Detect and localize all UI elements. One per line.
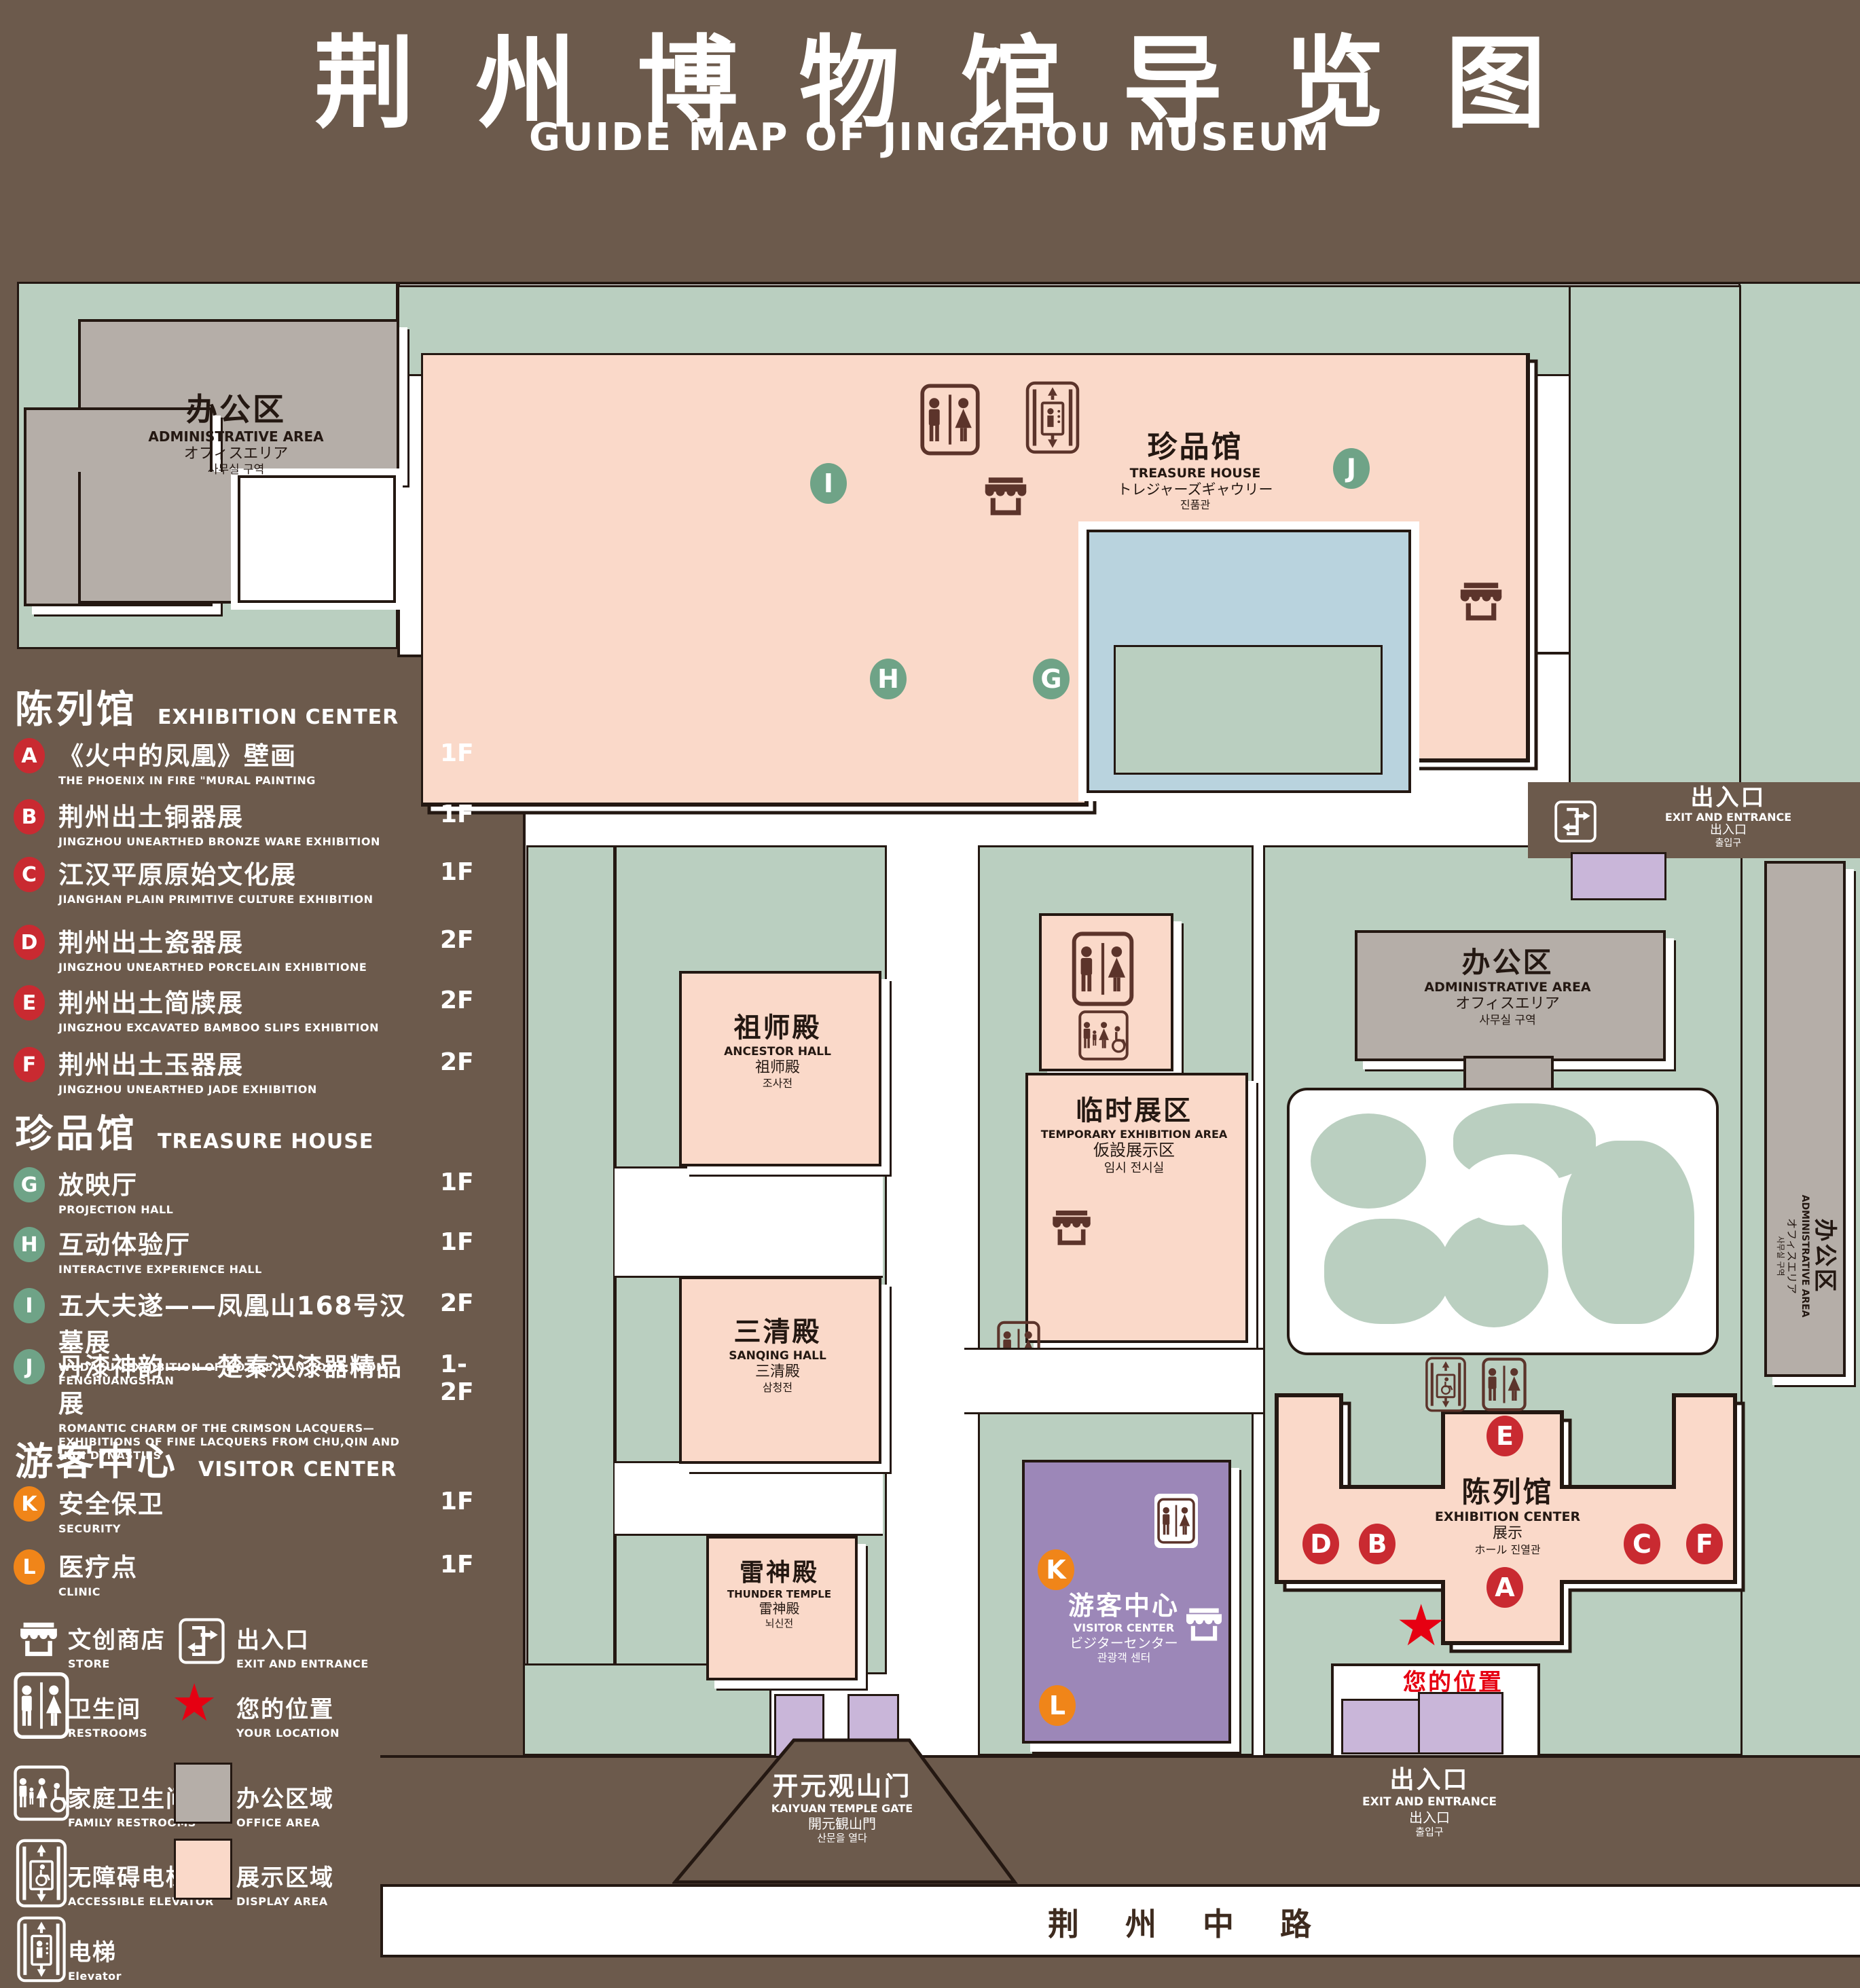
thunder-temple-label: 雷神殿 THUNDER TEMPLE 雷神殿 뇌신전 <box>706 1558 852 1630</box>
treasure-label-ja: トレジャーズギャウリー <box>1019 481 1372 499</box>
legend-symbol-exit-zh: 出入口 <box>236 1621 369 1655</box>
legend-item-j-floor: 1-2F <box>440 1350 489 1406</box>
garden-pond <box>1460 1154 1562 1226</box>
admin-e-label-en: ADMINISTRATIVE AREA <box>1355 980 1660 995</box>
thunder-label-en: THUNDER TEMPLE <box>706 1588 852 1600</box>
accessible-elevator-icon <box>14 1839 69 1908</box>
legend-symbol-location-zh: 您的位置 <box>236 1691 340 1724</box>
legend-symbol-restrooms: 卫生间 RESTROOMS <box>68 1691 147 1739</box>
legend-symbol-store: 文创商店 STORE <box>68 1621 166 1670</box>
marker-f: F <box>1686 1524 1723 1564</box>
visitor-label-ko: 관광객 센터 <box>1022 1651 1226 1665</box>
admin-nw-label-ja: オフィスエリア <box>78 445 394 464</box>
sanqing-label-zh: 三清殿 <box>679 1316 876 1349</box>
legend-symbol-location-en: YOUR LOCATION <box>236 1727 340 1739</box>
legend-item-k-floor: 1F <box>440 1488 474 1515</box>
legend-item-g: G 放映厅 PROJECTION HALL 1F <box>14 1164 489 1217</box>
admin-nw-courtyard <box>238 475 396 603</box>
restroom-icon <box>1482 1357 1527 1412</box>
admin-strip-label-zh: 办公区 <box>1810 1147 1838 1365</box>
family-restroom-icon <box>14 1760 69 1826</box>
legend-symbol-exit-en: EXIT AND ENTRANCE <box>236 1657 369 1670</box>
sanqing-hall-label: 三清殿 SANQING HALL 三清殿 삼청전 <box>679 1316 876 1395</box>
exit-s-ja: 出入口 <box>1304 1809 1555 1826</box>
marker-d: D <box>1302 1524 1339 1564</box>
legend-item-c: C 江汉平原原始文化展 JIANGHAN PLAIN PRIMITIVE CUL… <box>14 854 489 906</box>
legend-item-k: K 安全保卫 SECURITY 1F <box>14 1484 489 1536</box>
ancestor-label-en: ANCESTOR HALL <box>679 1045 876 1059</box>
legend-header-treasure-zh: 珍品馆 <box>15 1103 137 1158</box>
legend-symbol-elevator: 电梯 Elevator <box>68 1934 122 1983</box>
legend-marker-j: J <box>14 1349 45 1384</box>
restroom-icon <box>920 384 980 456</box>
store-icon <box>981 475 1030 523</box>
marker-g: G <box>1033 659 1070 699</box>
sanqing-label-en: SANQING HALL <box>679 1349 876 1363</box>
legend-item-g-floor: 1F <box>440 1168 474 1196</box>
legend-header-exhibition-en: EXHIBITION CENTER <box>158 705 399 734</box>
restroom-icon <box>1157 1498 1195 1544</box>
exit-icon <box>1554 800 1597 843</box>
family-restroom-icon <box>1078 1010 1129 1061</box>
gate-block <box>1571 852 1666 900</box>
temporary-label-zh: 临时展区 <box>1025 1094 1243 1128</box>
legend-item-f-zh: 荆州出土玉器展 <box>58 1044 425 1081</box>
legend-header-exhibition-zh: 陈列馆 <box>15 679 137 734</box>
exit-south-label: 出入口 EXIT AND ENTRANCE 出入口 출입구 <box>1304 1765 1555 1838</box>
elevator-icon <box>1025 380 1080 455</box>
path-band <box>615 1166 883 1278</box>
temporary-label-ja: 仮設展示区 <box>1025 1141 1243 1160</box>
exit-ne-ja: 出入口 <box>1603 824 1854 838</box>
legend-symbol-office: 办公区域 OFFICE AREA <box>236 1780 334 1829</box>
office-area-swatch <box>174 1763 232 1824</box>
legend-item-g-en: PROJECTION HALL <box>58 1203 425 1217</box>
exit-s-zh: 出入口 <box>1304 1765 1555 1795</box>
gate-label-ja: 開元観山門 <box>706 1816 978 1832</box>
legend-marker-f: F <box>14 1047 45 1082</box>
ancestor-label-zh: 祖师殿 <box>679 1012 876 1045</box>
gate-label-en: KAIYUAN TEMPLE GATE <box>706 1802 978 1816</box>
marker-k: K <box>1038 1549 1074 1590</box>
marker-a: A <box>1487 1567 1523 1608</box>
exit-icon <box>178 1617 225 1665</box>
thunder-label-zh2: 雷神殿 <box>706 1600 852 1617</box>
admin-strip-label-ko: 사무실 구역 <box>1775 1147 1785 1365</box>
treasure-label-en: TREASURE HOUSE <box>1019 466 1372 481</box>
gate-label-zh: 开元观山门 <box>706 1771 978 1802</box>
lawn-west-strip <box>526 845 615 1674</box>
legend-item-e-floor: 2F <box>440 987 474 1014</box>
temporary-exhibition-label: 临时展区 TEMPORARY EXHIBITION AREA 仮設展示区 임시 … <box>1025 1094 1243 1176</box>
admin-strip-label: 办公区 ADMINISTRATIVE AREA オフィスエリア 사무실 구역 <box>1764 1147 1838 1365</box>
exit-ne-zh: 出入口 <box>1603 785 1854 811</box>
legend-item-e-en: JINGZHOU EXCAVATED BAMBOO SLIPS EXHIBITI… <box>58 1021 425 1035</box>
admin-nw-label-zh: 办公区 <box>78 390 394 428</box>
admin-e-label-ja: オフィスエリア <box>1355 995 1660 1014</box>
admin-e-label-zh: 办公区 <box>1355 945 1660 980</box>
restroom-icon <box>14 1672 69 1739</box>
legend-marker-i: I <box>14 1288 45 1323</box>
thunder-label-zh: 雷神殿 <box>706 1558 852 1588</box>
exhibition-label-l4: ホール 진열관 <box>1385 1543 1630 1557</box>
sanqing-label-zh2: 三清殿 <box>679 1363 876 1382</box>
legend-marker-l: L <box>14 1549 45 1585</box>
kaiyuan-gate-label: 开元观山门 KAIYUAN TEMPLE GATE 開元観山門 산문을 열다 <box>706 1771 978 1845</box>
restroom-icon <box>1072 932 1134 1006</box>
legend-item-b: B 荆州出土铜器展 JINGZHOU UNEARTHED BRONZE WARE… <box>14 796 489 849</box>
store-icon <box>1457 581 1506 628</box>
store-icon <box>1183 1606 1225 1647</box>
garden-lawn <box>1440 1215 1548 1327</box>
legend-symbol-display-zh: 展示区域 <box>236 1859 334 1892</box>
sanqing-label-ko: 삼청전 <box>679 1381 876 1395</box>
marker-b: B <box>1359 1524 1396 1564</box>
road-name: 荆 州 中 路 <box>951 1900 1426 1945</box>
legend-marker-c: C <box>14 857 45 892</box>
admin-nw-label: 办公区 ADMINISTRATIVE AREA オフィスエリア 사무실 구역 <box>78 390 394 477</box>
legend-marker-a: A <box>14 738 45 773</box>
temporary-label-ko: 임시 전시실 <box>1025 1161 1243 1176</box>
your-location-star-icon: ★ <box>1396 1597 1446 1654</box>
exit-ne-ko: 출입구 <box>1603 838 1854 849</box>
legend-item-j-zh: 丹漆神韵——楚秦汉漆器精品展 <box>58 1346 425 1420</box>
pond-lawn <box>1114 645 1383 775</box>
thunder-label-ko: 뇌신전 <box>706 1617 852 1630</box>
store-icon <box>1049 1209 1094 1252</box>
marker-i: I <box>810 463 847 504</box>
legend-item-b-floor: 1F <box>440 800 474 828</box>
legend-symbol-restrooms-zh: 卫生间 <box>68 1691 147 1724</box>
legend-item-d-floor: 2F <box>440 926 474 954</box>
legend-header-visitor-zh: 游客中心 <box>15 1431 178 1486</box>
garden-lawn <box>1562 1141 1694 1324</box>
admin-e-label-ko: 사무실 구역 <box>1355 1014 1660 1028</box>
exit-s-en: EXIT AND ENTRANCE <box>1304 1795 1555 1809</box>
legend-item-c-zh: 江汉平原原始文化展 <box>58 854 425 891</box>
legend-item-h-en: INTERACTIVE EXPERIENCE HALL <box>58 1263 425 1276</box>
legend-item-d: D 荆州出土瓷器展 JINGZHOU UNEARTHED PORCELAIN E… <box>14 922 489 974</box>
garden-lawn <box>1324 1219 1450 1324</box>
legend-item-h-floor: 1F <box>440 1228 474 1256</box>
admin-nw-joint <box>78 472 247 604</box>
legend-item-a-floor: 1F <box>440 739 474 767</box>
legend-item-k-en: SECURITY <box>58 1522 425 1536</box>
guide-map-sign: 荆州博物馆导览图 GUIDE MAP OF JINGZHOU MUSEUM 荆 … <box>0 0 1860 1988</box>
exhibition-label-zh: 陈列馆 <box>1385 1475 1630 1509</box>
accessible-elevator-icon <box>1425 1357 1467 1412</box>
ancestor-hall-label: 祖师殿 ANCESTOR HALL 祖师殿 조사전 <box>679 1012 876 1090</box>
legend-symbol-store-en: STORE <box>68 1657 166 1670</box>
legend-marker-h: H <box>14 1227 45 1262</box>
exhibition-label-en: EXHIBITION CENTER <box>1385 1509 1630 1525</box>
marker-j: J <box>1333 448 1370 489</box>
legend-item-h: H 互动体验厅 INTERACTIVE EXPERIENCE HALL 1F <box>14 1224 489 1276</box>
admin-strip-label-ja: オフィスエリア <box>1785 1147 1799 1365</box>
marker-e: E <box>1487 1416 1523 1456</box>
legend-marker-g: G <box>14 1167 45 1202</box>
legend-item-a: A 《火中的凤凰》壁画 THE PHOENIX IN FIRE "MURAL P… <box>14 735 489 788</box>
display-area-swatch <box>174 1839 232 1900</box>
ancestor-label-ko: 조사전 <box>679 1077 876 1090</box>
admin-nw-label-en: ADMINISTRATIVE AREA <box>78 428 394 445</box>
legend-item-b-en: JINGZHOU UNEARTHED BRONZE WARE EXHIBITIO… <box>58 835 425 849</box>
store-icon <box>17 1621 60 1662</box>
legend-item-e-zh: 荆州出土简牍展 <box>58 982 425 1019</box>
legend-header-visitor: 游客中心 VISITOR CENTER <box>15 1431 397 1486</box>
legend-symbol-location: 您的位置 YOUR LOCATION <box>236 1691 340 1739</box>
legend-symbol-office-zh: 办公区域 <box>236 1780 334 1814</box>
garden-lawn <box>1311 1113 1426 1209</box>
exit-ne-en: EXIT AND ENTRANCE <box>1603 811 1854 824</box>
legend-item-g-zh: 放映厅 <box>58 1164 425 1201</box>
legend-symbol-display-en: DISPLAY AREA <box>236 1895 334 1908</box>
legend-item-d-en: JINGZHOU UNEARTHED PORCELAIN EXHIBITIONE <box>58 961 425 974</box>
legend-item-h-zh: 互动体验厅 <box>58 1224 425 1261</box>
legend-item-b-zh: 荆州出土铜器展 <box>58 796 425 833</box>
legend-marker-e: E <box>14 985 45 1020</box>
legend-item-f-en: JINGZHOU UNEARTHED JADE EXHIBITION <box>58 1083 425 1097</box>
legend-item-c-en: JIANGHAN PLAIN PRIMITIVE CULTURE EXHIBIT… <box>58 893 425 906</box>
admin-e-label: 办公区 ADMINISTRATIVE AREA オフィスエリア 사무실 구역 <box>1355 945 1660 1028</box>
marker-h: H <box>870 659 907 699</box>
legend-item-a-zh: 《火中的凤凰》壁画 <box>58 735 425 772</box>
sidewalk <box>380 1755 1860 1887</box>
legend-symbol-display: 展示区域 DISPLAY AREA <box>236 1859 334 1908</box>
page-subtitle: GUIDE MAP OF JINGZHOU MUSEUM <box>0 115 1860 160</box>
legend-item-e: E 荆州出土简牍展 JINGZHOU EXCAVATED BAMBOO SLIP… <box>14 982 489 1035</box>
legend-item-l: L 医疗点 CLINIC 1F <box>14 1547 489 1599</box>
legend-item-i-floor: 2F <box>440 1289 474 1317</box>
ancestor-label-zh2: 祖师殿 <box>679 1059 876 1078</box>
legend-symbol-elevator-en: Elevator <box>68 1970 122 1983</box>
legend-item-f-floor: 2F <box>440 1048 474 1076</box>
admin-nw-label-ko: 사무실 구역 <box>78 463 394 477</box>
legend-symbol-exit: 出入口 EXIT AND ENTRANCE <box>236 1621 369 1670</box>
exit-northeast-label: 出入口 EXIT AND ENTRANCE 出入口 출입구 <box>1603 785 1854 849</box>
legend-item-k-zh: 安全保卫 <box>58 1484 425 1520</box>
legend-marker-k: K <box>14 1486 45 1522</box>
legend-header-exhibition: 陈列馆 EXHIBITION CENTER <box>15 679 399 734</box>
legend-symbol-office-en: OFFICE AREA <box>236 1816 334 1829</box>
legend-item-a-en: THE PHOENIX IN FIRE "MURAL PAINTING <box>58 774 425 788</box>
exit-s-ko: 출입구 <box>1304 1826 1555 1838</box>
legend-marker-b: B <box>14 799 45 834</box>
lawn-northeast <box>1569 285 1741 792</box>
gate-post <box>1418 1692 1503 1754</box>
gate-label-ko: 산문을 열다 <box>706 1832 978 1844</box>
legend-item-l-floor: 1F <box>440 1551 474 1579</box>
your-location-star-icon: ★ <box>171 1677 217 1729</box>
path-band <box>964 1348 1263 1414</box>
legend-marker-d: D <box>14 925 45 960</box>
legend-item-l-en: CLINIC <box>58 1585 425 1599</box>
legend-item-f: F 荆州出土玉器展 JINGZHOU UNEARTHED JADE EXHIBI… <box>14 1044 489 1097</box>
temporary-label-en: TEMPORARY EXHIBITION AREA <box>1025 1128 1243 1141</box>
exhibition-label-l3: 展示 <box>1385 1525 1630 1543</box>
legend-header-treasure: 珍品馆 TREASURE HOUSE <box>15 1103 373 1158</box>
legend-item-l-zh: 医疗点 <box>58 1547 425 1583</box>
marker-c: C <box>1624 1524 1660 1564</box>
legend-symbol-store-zh: 文创商店 <box>68 1621 166 1655</box>
legend-symbol-restrooms-en: RESTROOMS <box>68 1727 147 1739</box>
treasure-label-ko: 진품관 <box>1019 498 1372 512</box>
legend-header-treasure-en: TREASURE HOUSE <box>158 1130 373 1158</box>
elevator-icon <box>16 1916 67 1983</box>
marker-l: L <box>1039 1685 1076 1726</box>
legend-header-visitor-en: VISITOR CENTER <box>198 1458 397 1486</box>
exhibition-center-label: 陈列馆 EXHIBITION CENTER 展示 ホール 진열관 <box>1385 1475 1630 1557</box>
legend-item-c-floor: 1F <box>440 858 474 886</box>
gate-post <box>1341 1699 1423 1754</box>
legend-symbol-elevator-zh: 电梯 <box>68 1934 122 1967</box>
legend-item-d-zh: 荆州出土瓷器展 <box>58 922 425 959</box>
path-band <box>615 1461 883 1536</box>
admin-str-label-en: ADMINISTRATIVE AREA <box>1798 1147 1810 1365</box>
